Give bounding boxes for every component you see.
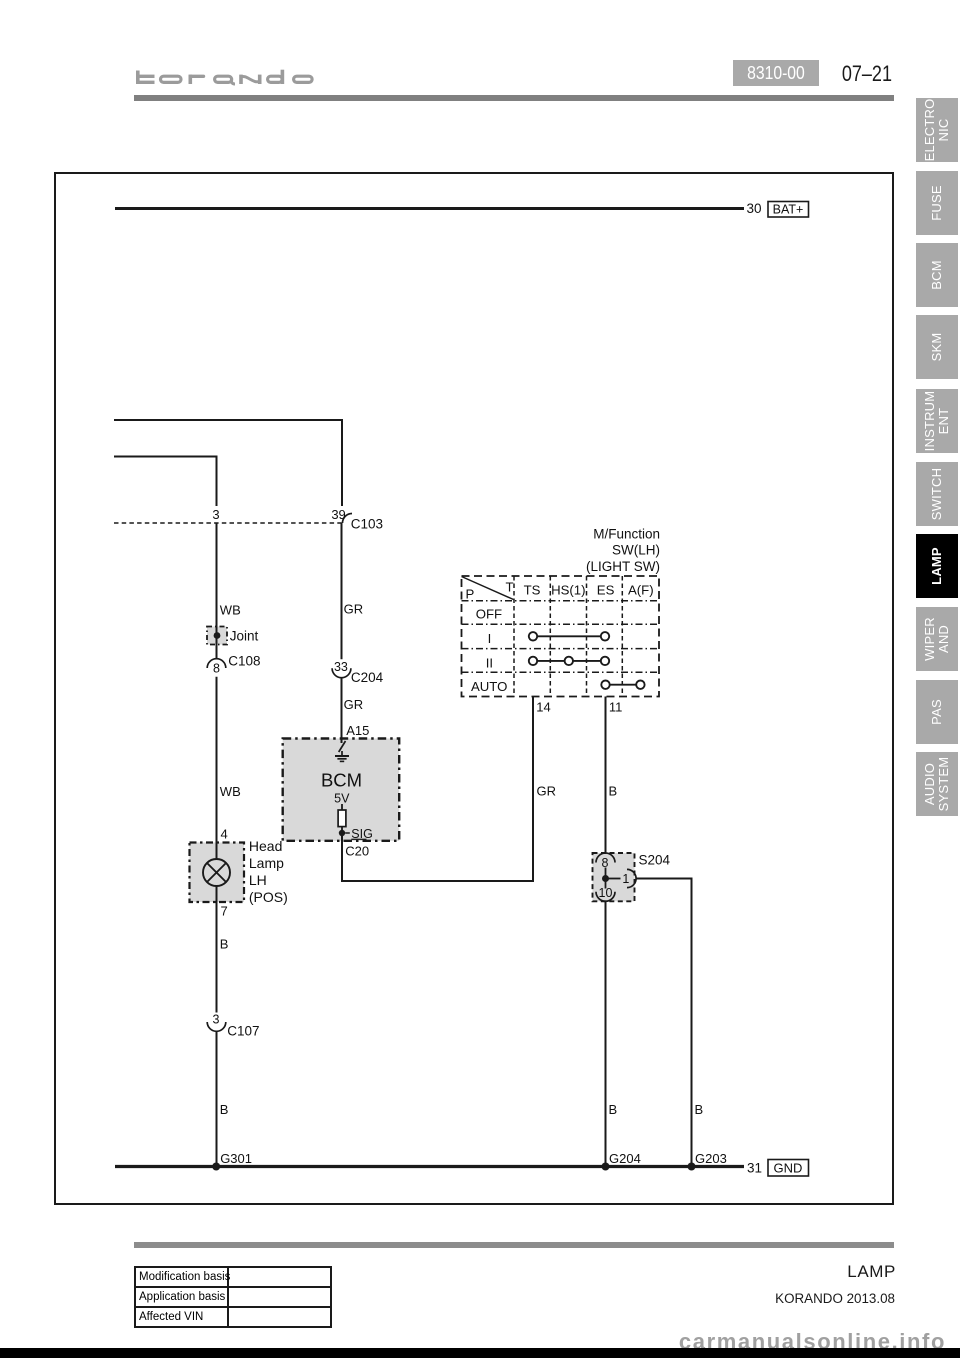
svg-text:3: 3 — [212, 507, 219, 522]
svg-text:7: 7 — [221, 904, 228, 919]
svg-text:C204: C204 — [351, 670, 384, 685]
svg-text:1: 1 — [622, 872, 629, 886]
svg-text:AUTO: AUTO — [471, 679, 507, 694]
svg-text:(POS): (POS) — [249, 889, 288, 905]
svg-text:33: 33 — [334, 660, 348, 674]
svg-text:B: B — [220, 1102, 229, 1117]
svg-text:B: B — [220, 937, 229, 952]
svg-text:A15: A15 — [346, 723, 369, 738]
svg-text:31: 31 — [747, 1160, 762, 1175]
svg-text:BAT+: BAT+ — [773, 203, 804, 217]
svg-text:G301: G301 — [220, 1151, 252, 1166]
svg-text:C107: C107 — [227, 1023, 259, 1038]
svg-text:TS: TS — [524, 583, 541, 598]
svg-text:ES: ES — [597, 583, 615, 598]
svg-text:C103: C103 — [351, 517, 383, 532]
svg-text:Lamp: Lamp — [249, 855, 284, 871]
svg-text:GR: GR — [344, 697, 364, 712]
svg-text:G204: G204 — [609, 1151, 641, 1166]
svg-text:10: 10 — [599, 886, 613, 900]
svg-text:B: B — [609, 784, 618, 799]
svg-text:SW(LH): SW(LH) — [612, 543, 660, 558]
svg-text:OFF: OFF — [476, 607, 502, 622]
svg-text:11: 11 — [609, 700, 623, 715]
svg-text:C108: C108 — [228, 654, 260, 669]
svg-text:II: II — [486, 655, 493, 670]
svg-text:8: 8 — [602, 856, 609, 870]
svg-text:30: 30 — [746, 201, 761, 216]
svg-text:I: I — [488, 631, 492, 646]
svg-text:GR: GR — [344, 602, 364, 617]
svg-text:G203: G203 — [695, 1151, 727, 1166]
svg-text:8: 8 — [213, 662, 220, 676]
svg-text:14: 14 — [536, 700, 550, 715]
svg-text:B: B — [609, 1102, 618, 1117]
svg-text:GR: GR — [537, 784, 557, 799]
svg-text:GND: GND — [774, 1161, 803, 1176]
svg-text:B: B — [695, 1102, 704, 1117]
svg-text:SIG: SIG — [351, 827, 373, 841]
svg-text:LH: LH — [249, 872, 267, 888]
svg-text:Joint: Joint — [230, 629, 259, 644]
svg-text:4: 4 — [221, 827, 228, 842]
svg-text:5V: 5V — [334, 791, 350, 805]
svg-text:BCM: BCM — [321, 770, 362, 791]
svg-text:WB: WB — [220, 603, 241, 618]
svg-text:Head: Head — [249, 838, 282, 854]
svg-text:39: 39 — [331, 507, 345, 522]
svg-text:HS(1): HS(1) — [551, 583, 585, 598]
svg-text:WB: WB — [220, 784, 241, 799]
svg-text:S204: S204 — [639, 853, 671, 868]
svg-text:M/Function: M/Function — [593, 526, 660, 541]
svg-text:C20: C20 — [345, 844, 369, 859]
svg-text:3: 3 — [213, 1013, 220, 1027]
svg-text:(LIGHT SW): (LIGHT SW) — [586, 559, 660, 574]
svg-text:A(F): A(F) — [628, 583, 654, 598]
svg-text:T: T — [506, 580, 514, 595]
svg-text:P: P — [466, 587, 475, 602]
